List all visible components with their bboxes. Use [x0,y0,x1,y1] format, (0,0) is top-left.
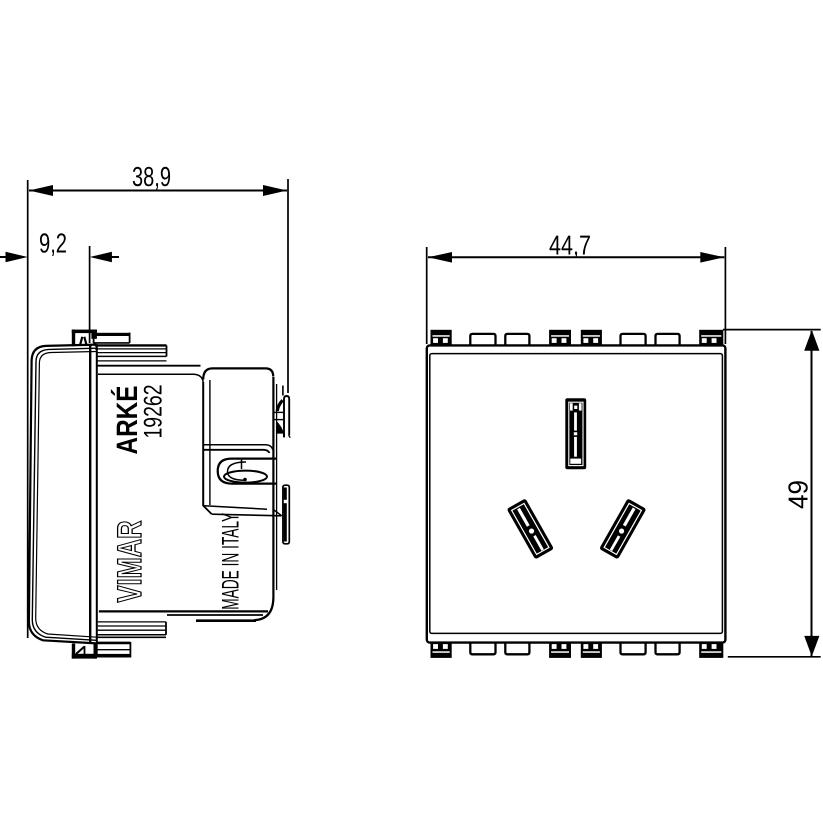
svg-text:19262: 19262 [140,385,168,439]
svg-text:49: 49 [783,480,814,509]
svg-text:VIMAR: VIMAR [111,521,149,603]
svg-text:9,2: 9,2 [39,228,67,259]
svg-text:44,7: 44,7 [549,230,591,261]
svg-text:38,9: 38,9 [132,161,171,192]
svg-text:MADE IN ITALY: MADE IN ITALY [218,513,245,610]
